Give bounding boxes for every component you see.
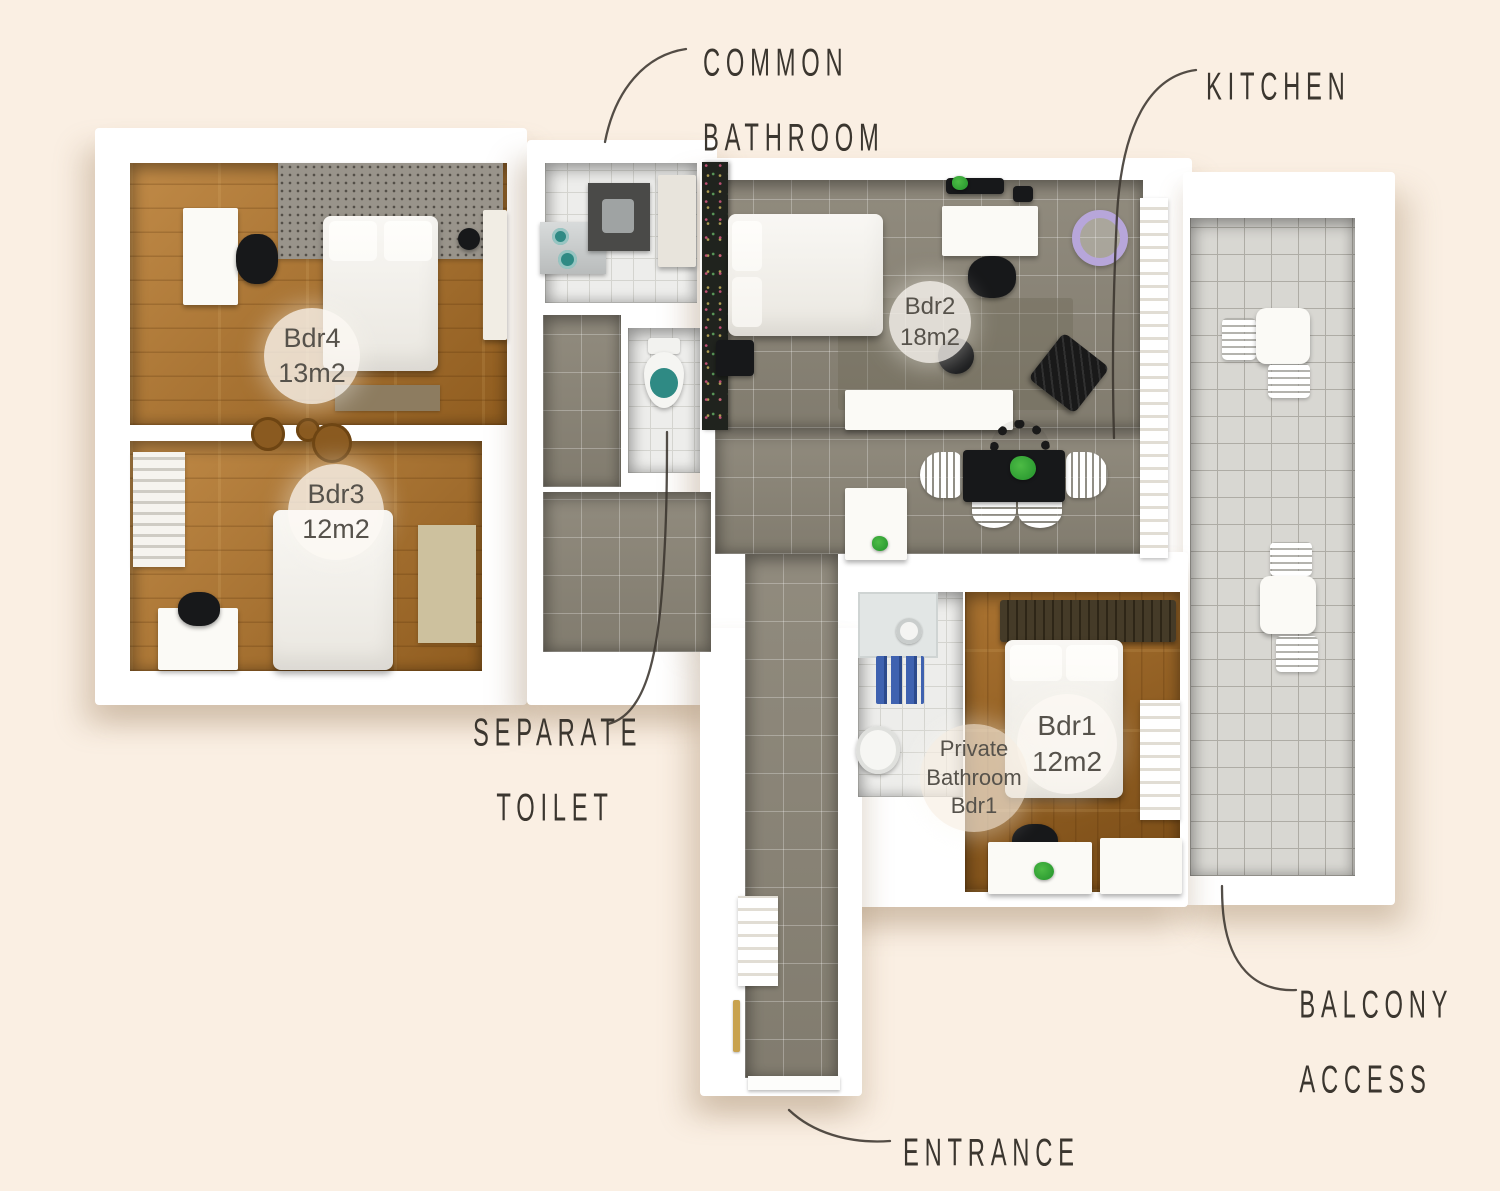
bdr3-stool xyxy=(251,417,285,451)
badge-line: Private xyxy=(940,735,1008,764)
bdr1-cabinet xyxy=(1100,838,1182,894)
balcony-chair xyxy=(1268,364,1310,398)
bdr1-pillows xyxy=(1010,645,1062,681)
label-entrance: ENTRANCE xyxy=(903,1116,1080,1191)
label-line: BALCONY xyxy=(1299,968,1430,1043)
bdr1-desk-plant xyxy=(1034,862,1054,880)
balcony-chair xyxy=(1222,318,1256,360)
bdr1-wardrobe xyxy=(1140,700,1180,820)
bdr2-sideboard xyxy=(845,390,1013,430)
bathroom-vanity-sink xyxy=(588,183,650,251)
balcony-chair xyxy=(1276,636,1318,672)
balcony-chair xyxy=(1270,542,1312,576)
room-name: Bdr4 xyxy=(283,321,340,356)
bdr3-window-blinds xyxy=(133,452,185,567)
bathroom-cabinet xyxy=(658,175,696,267)
bdr2-nightstand xyxy=(716,340,754,376)
bdr3-stool xyxy=(312,423,352,463)
bdr2-desk-chair xyxy=(968,256,1016,298)
bdr4-wardrobe xyxy=(483,210,507,340)
hallway-floor-middle xyxy=(543,492,711,652)
dining-chair xyxy=(1066,452,1108,498)
room-badge-bdr4: Bdr4 13m2 xyxy=(264,308,360,404)
dining-chair xyxy=(920,452,962,498)
hall-shoe-cabinet xyxy=(738,896,778,986)
bdr1-wicker-headboard xyxy=(1000,600,1176,642)
shower-head xyxy=(896,618,922,644)
bdr2-bed xyxy=(728,214,883,336)
label-separate-toilet: SEPARATE TOILET xyxy=(473,696,637,846)
room-badge-private-bathroom: Private Bathroom Bdr1 xyxy=(920,724,1028,832)
bdr2-round-mirror xyxy=(1072,210,1128,266)
label-line: ACCESS xyxy=(1299,1043,1430,1118)
label-line: TOILET xyxy=(473,771,637,846)
washer-drum xyxy=(558,250,577,269)
label-line: KITCHEN xyxy=(1206,50,1351,125)
shelf-plant xyxy=(952,176,968,190)
balcony-table xyxy=(1260,576,1316,634)
label-line: BATHROOM xyxy=(703,101,885,176)
room-area: 12m2 xyxy=(1032,744,1102,780)
bdr4-wall-lamp xyxy=(458,228,480,250)
bdr2-accent-wall xyxy=(702,162,728,430)
sink-basin xyxy=(602,199,634,233)
room-area: 13m2 xyxy=(278,356,346,391)
label-line: ENTRANCE xyxy=(903,1116,1080,1191)
label-line: COMMON xyxy=(703,26,885,101)
room-area: 18m2 xyxy=(900,322,960,353)
bdr4-runner-rug xyxy=(335,385,440,411)
room-name: Bdr2 xyxy=(905,291,956,322)
room-name: Bdr1 xyxy=(1037,708,1096,744)
label-line: SEPARATE xyxy=(473,696,637,771)
bdr3-rug xyxy=(418,525,476,643)
kitchen-cabinet-column xyxy=(1140,198,1168,558)
room-name: Bdr3 xyxy=(307,477,364,512)
bdr4-pillows xyxy=(329,221,377,261)
leader-common-bathroom xyxy=(605,49,686,142)
entrance-door xyxy=(748,1076,840,1090)
bdr4-desk xyxy=(183,208,238,305)
leader-entrance xyxy=(789,1110,890,1141)
badge-line: Bdr1 xyxy=(951,792,997,821)
balcony-table xyxy=(1256,308,1310,364)
bdr2-wall-box xyxy=(1013,186,1033,202)
toilet-lid xyxy=(650,368,678,398)
kitchen-counter-plant xyxy=(872,536,888,551)
bdr3-desk-chair xyxy=(178,592,220,626)
bathroom-sink xyxy=(856,726,900,774)
badge-line: Bathroom xyxy=(926,764,1021,793)
hall-radiator xyxy=(733,1000,740,1052)
room-area: 12m2 xyxy=(302,512,370,547)
towel-rack-blue-towels xyxy=(876,656,924,704)
bdr2-pillows xyxy=(732,221,762,271)
dining-table-plant xyxy=(1010,456,1036,480)
entrance-hall-floor xyxy=(745,554,838,1078)
washer-drum xyxy=(552,228,569,245)
label-kitchen: KITCHEN xyxy=(1206,50,1351,125)
room-badge-bdr2: Bdr2 18m2 xyxy=(889,281,971,363)
bdr4-desk-chair xyxy=(236,234,278,284)
label-common-bathroom: COMMON BATHROOM xyxy=(703,26,885,176)
label-balcony-access: BALCONY ACCESS xyxy=(1299,968,1430,1118)
room-badge-bdr3: Bdr3 12m2 xyxy=(288,464,384,560)
room-badge-bdr1: Bdr1 12m2 xyxy=(1017,694,1117,794)
apartment-floor-plan: Bdr4 13m2 Bdr3 12m2 Bdr2 18m2 Bdr1 12m2 … xyxy=(0,0,1500,1179)
hallway-floor-upper xyxy=(543,315,621,487)
bdr2-desk xyxy=(942,206,1038,256)
